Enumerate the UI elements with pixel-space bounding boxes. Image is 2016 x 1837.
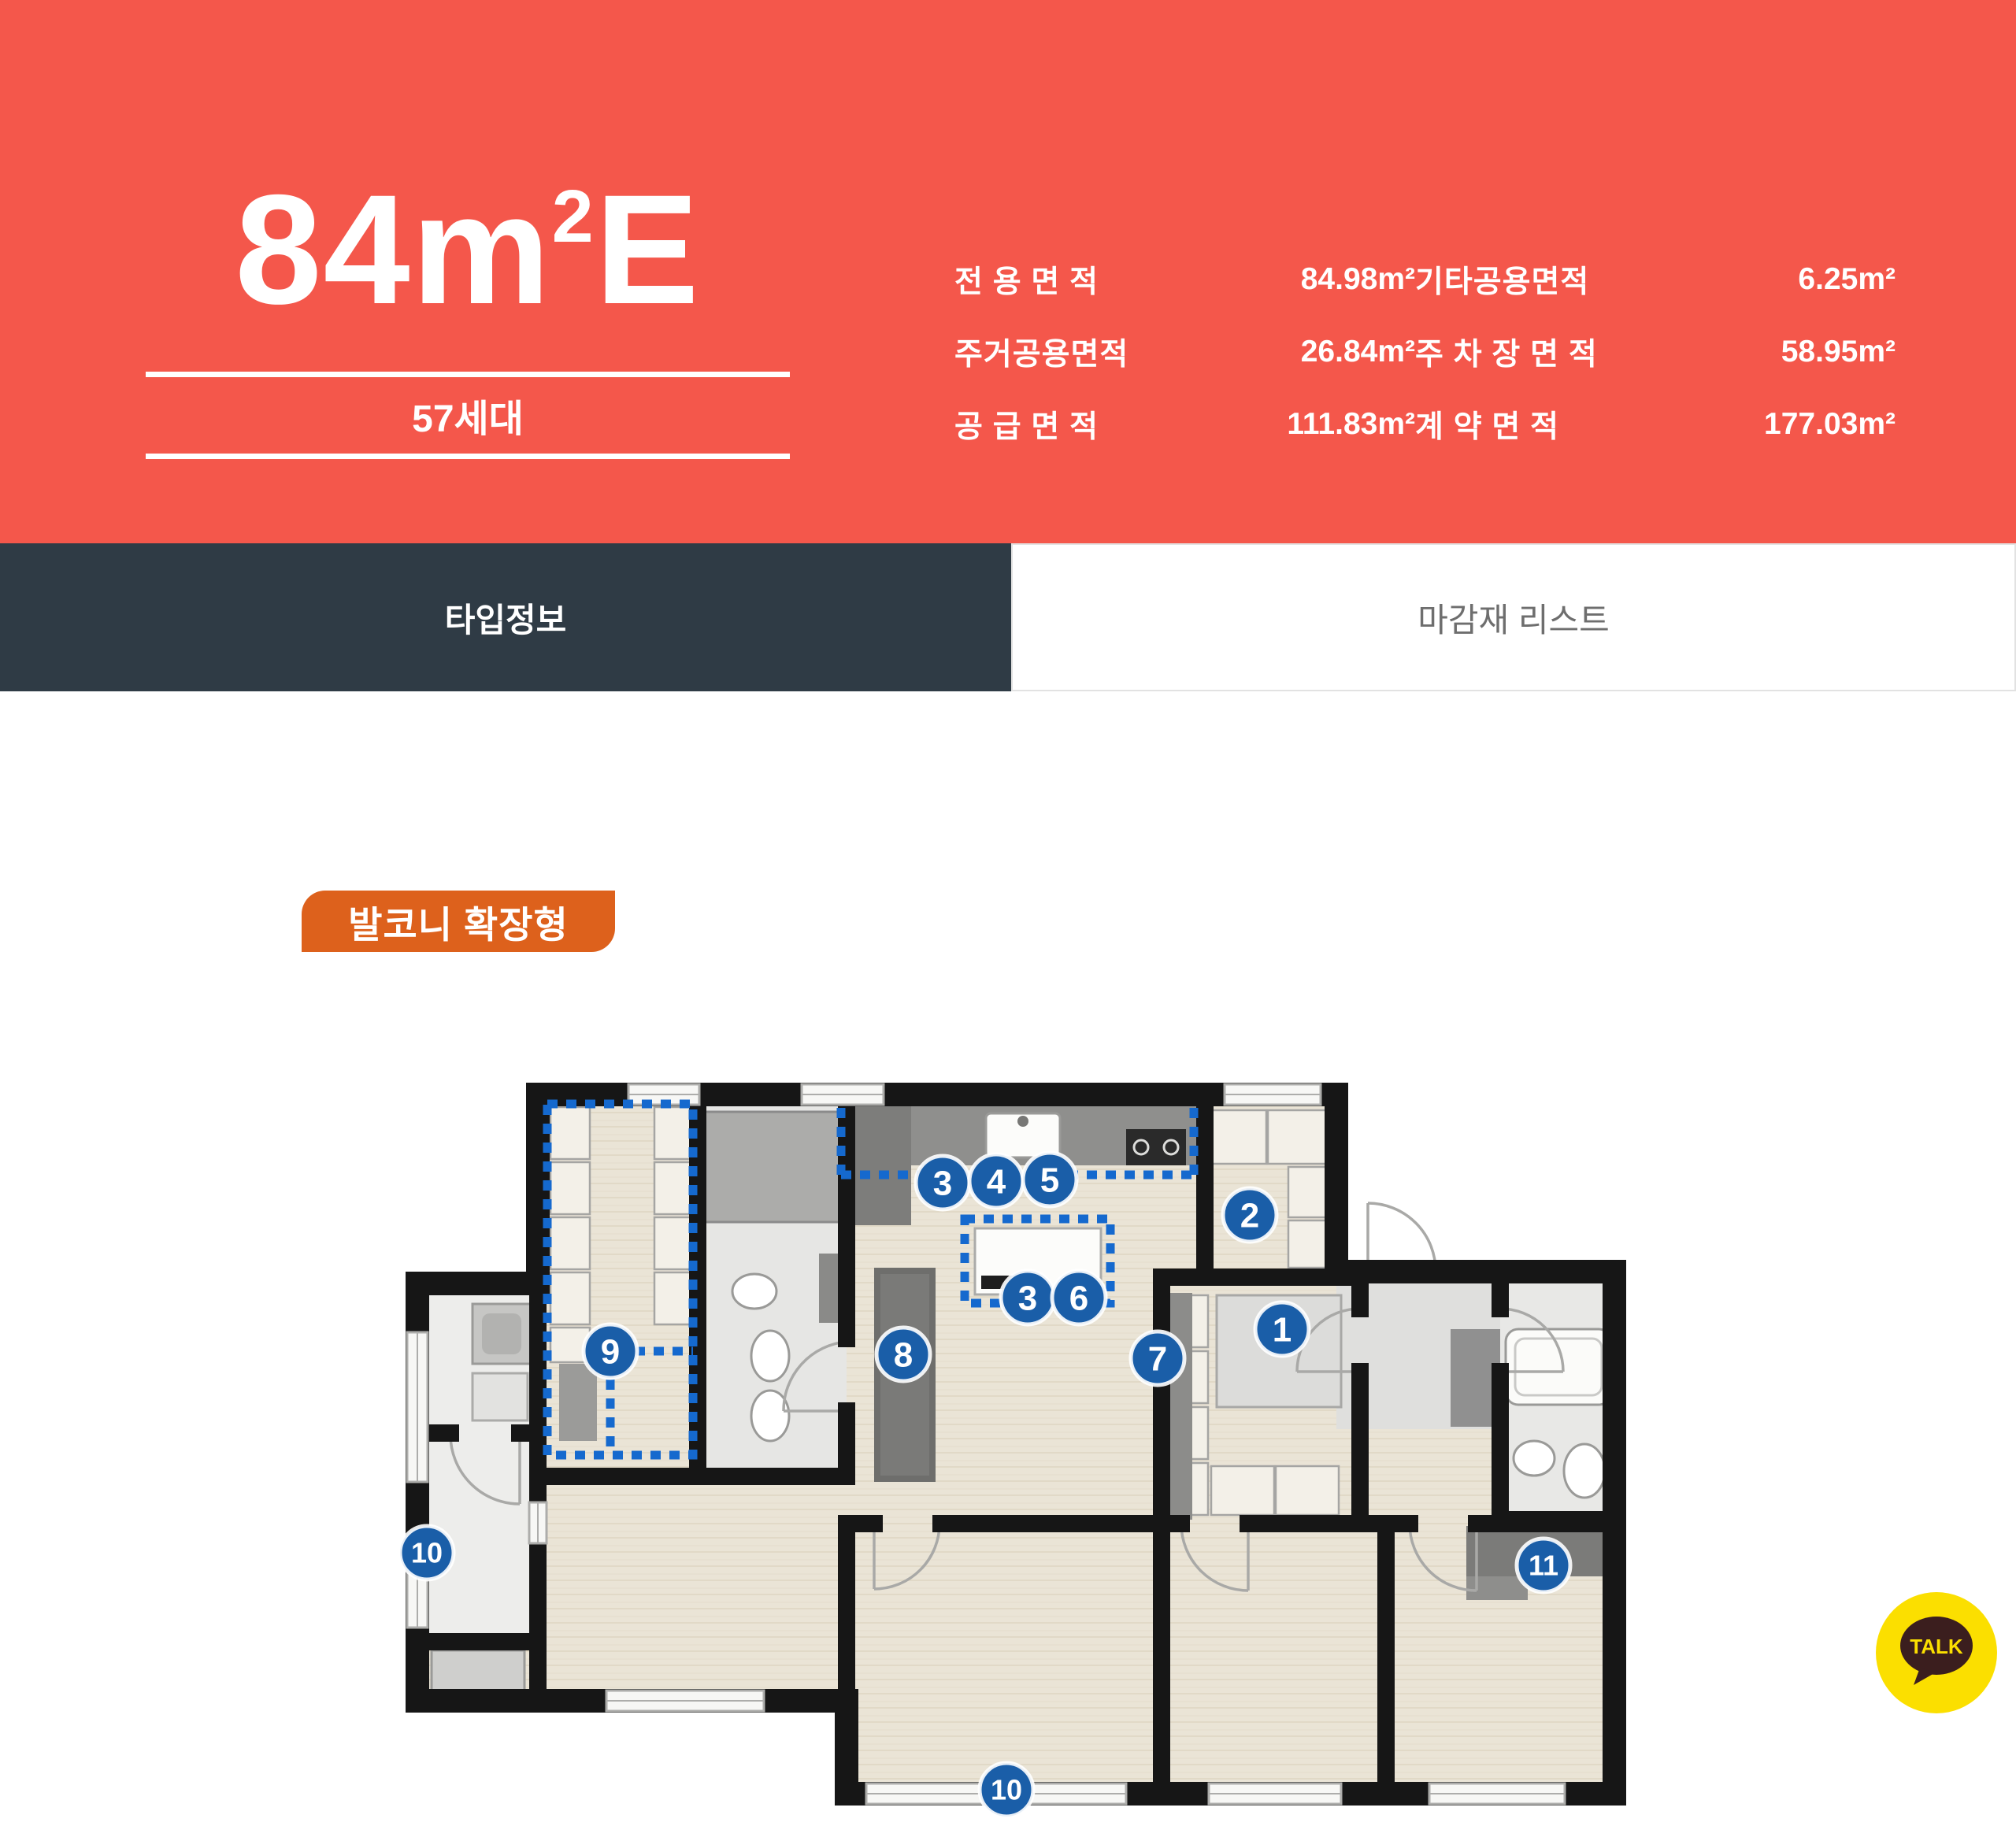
svg-text:9: 9 xyxy=(601,1332,620,1371)
svg-text:3: 3 xyxy=(933,1164,952,1202)
plan-marker-9: 9 xyxy=(584,1324,637,1378)
plan-marker-8: 8 xyxy=(876,1328,930,1381)
plan-marker-11: 11 xyxy=(1517,1539,1570,1592)
svg-text:5: 5 xyxy=(1040,1161,1059,1199)
svg-text:10: 10 xyxy=(991,1774,1022,1806)
plan-marker-3: 3 xyxy=(1001,1271,1054,1324)
plan-marker-5: 5 xyxy=(1023,1153,1077,1206)
svg-text:3: 3 xyxy=(1018,1279,1037,1317)
svg-text:10: 10 xyxy=(411,1537,443,1569)
plan-marker-2: 2 xyxy=(1223,1188,1277,1242)
svg-text:2: 2 xyxy=(1240,1196,1259,1235)
svg-text:7: 7 xyxy=(1148,1339,1167,1378)
kakao-button[interactable]: TALK xyxy=(1876,1592,1997,1713)
plan-marker-7: 7 xyxy=(1131,1331,1184,1385)
svg-text:11: 11 xyxy=(1529,1550,1558,1582)
plan-marker-4: 4 xyxy=(969,1154,1023,1208)
plan-marker-10: 10 xyxy=(980,1763,1033,1817)
floor-plan: 1234536789101011 xyxy=(0,0,2016,1837)
kakao-talk-icon: TALK xyxy=(1890,1606,1983,1699)
plan-marker-3: 3 xyxy=(916,1156,969,1209)
svg-text:4: 4 xyxy=(987,1162,1006,1201)
plan-marker-6: 6 xyxy=(1052,1271,1106,1324)
kakao-talk-label: TALK xyxy=(1910,1635,1963,1658)
plan-marker-10: 10 xyxy=(400,1526,454,1580)
plan-marker-1: 1 xyxy=(1255,1302,1309,1356)
svg-text:8: 8 xyxy=(894,1335,913,1374)
svg-text:6: 6 xyxy=(1069,1279,1088,1317)
svg-text:1: 1 xyxy=(1273,1310,1291,1349)
